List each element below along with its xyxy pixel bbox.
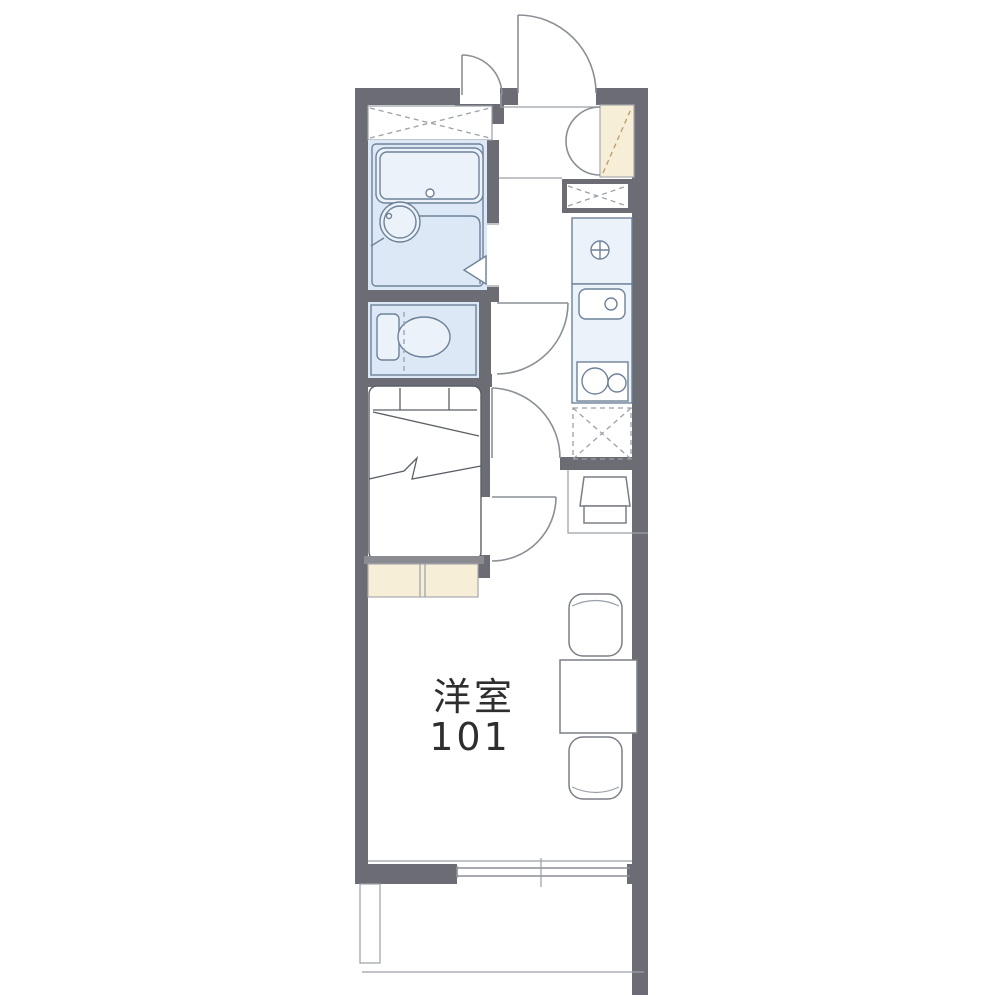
under-bed-storage	[368, 564, 478, 597]
bed	[369, 386, 481, 560]
stove-burner-right	[608, 374, 626, 392]
refrigerator-x	[573, 408, 631, 459]
wall-top-left	[355, 88, 460, 105]
wall-bottom-left	[355, 864, 457, 884]
tv-stand-base	[584, 506, 626, 523]
tv-stand-top	[580, 477, 630, 506]
bathtub-drain	[426, 189, 434, 197]
wall-bath-right-upper	[487, 140, 499, 225]
wall-left	[355, 88, 368, 884]
bedroom-door	[492, 497, 556, 561]
small-door	[462, 55, 502, 95]
wall-right	[632, 88, 648, 995]
toilet-tank	[377, 314, 399, 360]
washbasin	[380, 202, 420, 242]
wall-toilet-right	[479, 302, 491, 378]
floorplan-page: 洋室 101	[0, 0, 1001, 1000]
wall-bottom-right	[627, 864, 648, 884]
kitchen-sink	[579, 289, 625, 319]
entrance-door	[518, 15, 596, 93]
floorplan-drawing: 洋室 101	[0, 0, 1001, 1000]
overhead-closet	[368, 106, 492, 140]
toilet-room	[368, 302, 568, 378]
room-number-label: 101	[429, 715, 511, 759]
hall-door	[497, 303, 568, 374]
toilet-bowl	[398, 317, 450, 357]
stove-burner-left	[582, 368, 608, 394]
bed-alcove	[364, 386, 484, 597]
wall-top-mid	[500, 88, 518, 105]
shoe-cabinet	[600, 105, 634, 177]
shoe-cabinet-doors	[566, 107, 600, 175]
interior-doors	[492, 388, 560, 561]
main-room: 洋室 101	[429, 594, 637, 799]
kitchen	[562, 179, 633, 459]
bed-foot-ledge	[364, 556, 484, 564]
overhead-closet-box	[368, 106, 492, 140]
sliding-window	[457, 866, 630, 878]
kitchen-faucet	[605, 298, 617, 310]
wall-bath-toilet-divider	[368, 290, 499, 302]
room-name-label: 洋室	[433, 675, 515, 719]
balcony-side-wall	[360, 884, 380, 963]
bath-door-opening	[487, 223, 499, 287]
room-door	[492, 388, 560, 458]
bathroom	[368, 140, 499, 290]
table	[560, 660, 637, 733]
washbasin-tap	[387, 214, 392, 219]
